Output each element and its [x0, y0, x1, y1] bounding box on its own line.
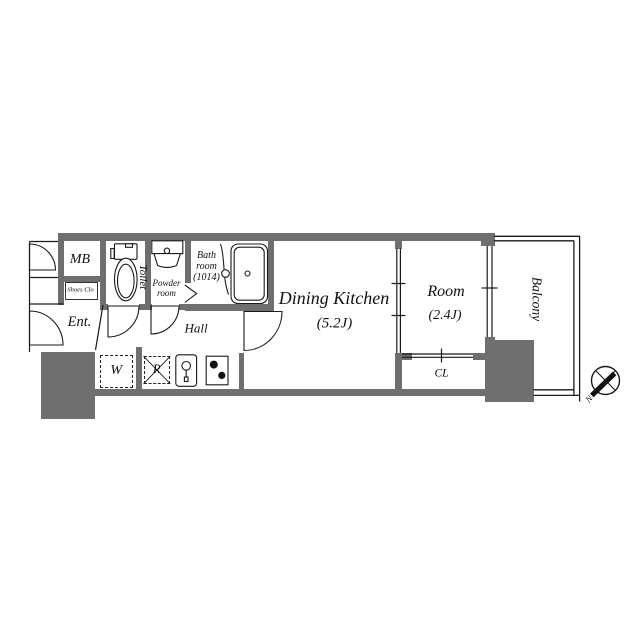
refrigerator-box: R	[144, 356, 171, 384]
pillar-block-left	[41, 352, 95, 419]
room-size: (2.4J)	[428, 308, 461, 324]
powder-room-label: Powder room	[153, 278, 181, 298]
wall-bath-bottom	[185, 304, 274, 312]
wall-washer-stub	[136, 347, 142, 389]
bath-line1: Bath	[197, 250, 216, 261]
toilet-label: Toilet	[136, 265, 148, 290]
bathtub-icon	[221, 244, 268, 304]
wall-cl-cap-left	[402, 353, 412, 360]
mb-door-arc	[30, 244, 56, 270]
bath-line2: room	[196, 261, 217, 272]
wall-top	[58, 233, 495, 241]
bath-room-label: Bath room (1014)	[193, 250, 220, 284]
washer-label: W	[110, 363, 122, 379]
bath-line3: (1014)	[193, 273, 220, 284]
wall-stub	[139, 304, 152, 310]
wall-divider-top	[395, 233, 402, 249]
entrance-step-line	[96, 305, 104, 350]
wall-above-window	[481, 241, 495, 246]
wall-bath-right	[268, 241, 274, 311]
balcony-label: Balcony	[529, 277, 544, 321]
room-label: Room	[427, 283, 464, 301]
wall-cl-cap-right	[473, 353, 485, 360]
wall-mb-toilet	[100, 241, 106, 304]
entrance-label: Ent.	[68, 314, 92, 330]
kitchen-sink-icon	[176, 355, 197, 387]
dining-kitchen-size: (5.2J)	[317, 315, 352, 332]
dining-kitchen-label: Dining Kitchen	[279, 288, 390, 308]
compass-icon	[590, 367, 620, 398]
closet-label: CL	[434, 367, 448, 380]
compass-north-label: N	[583, 393, 594, 404]
powder-line1: Powder	[153, 278, 181, 288]
toilet-door-arc	[108, 306, 139, 337]
stove-icon	[206, 356, 228, 385]
powder-door-arc	[151, 306, 179, 334]
powder-line2: room	[157, 288, 176, 298]
wall-counter-stub	[239, 353, 244, 389]
wall-powder-bath	[185, 241, 191, 283]
washing-machine-box: W	[100, 355, 133, 389]
wall-stub	[179, 304, 186, 310]
bifold-bath-door-icon	[185, 285, 197, 303]
pillar-block-right	[485, 340, 534, 402]
mb-label: MB	[70, 252, 90, 268]
wall-below-mb	[58, 276, 102, 282]
toilet-icon	[111, 244, 137, 301]
entrance-door-arc	[30, 311, 64, 345]
refrigerator-label: R	[153, 362, 161, 377]
compass-needle	[590, 372, 616, 398]
kitchen-door-arc	[244, 312, 282, 351]
wall-stub	[100, 304, 109, 310]
wall-left-upper	[58, 241, 64, 305]
shoes-closet-label: Shoes Clo	[67, 286, 93, 293]
hall-label: Hall	[184, 322, 207, 337]
floor-plan: W R MB Shoes Clo Ent. Toilet Powder room…	[0, 0, 640, 640]
wall-bottom	[95, 389, 485, 397]
washbasin-icon	[152, 241, 183, 268]
